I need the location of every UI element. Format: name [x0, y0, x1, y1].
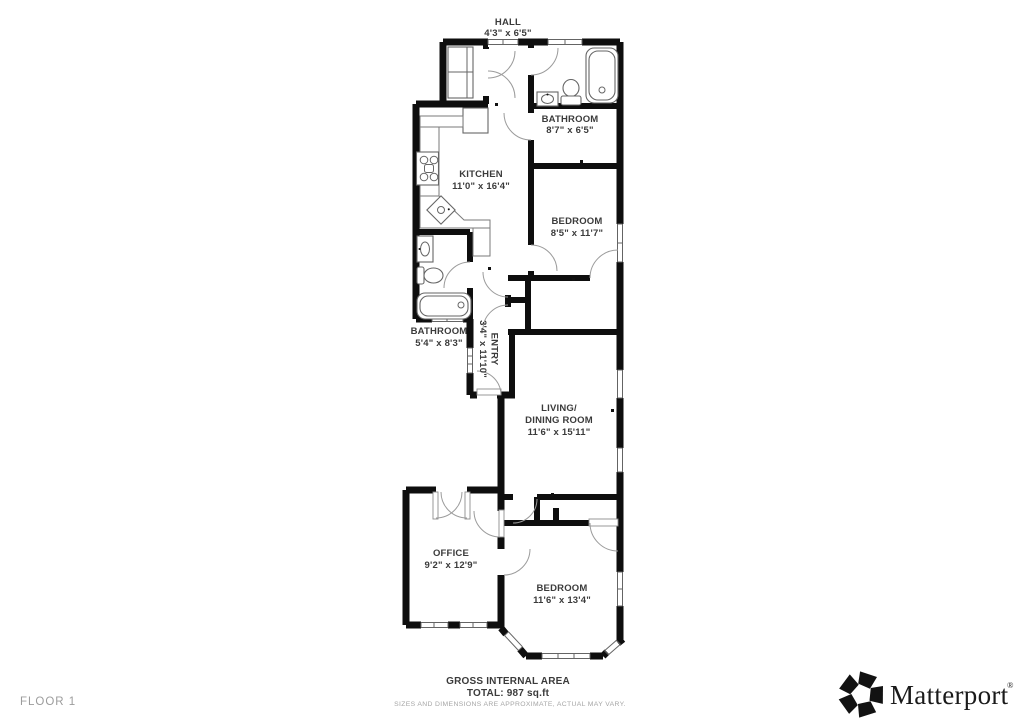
- window: [615, 370, 625, 398]
- room-label-bedroom-top: BEDROOM 8'5" x 11'7": [551, 216, 603, 239]
- door-arc: [436, 492, 462, 518]
- registered-mark-icon: ®: [1007, 680, 1014, 690]
- brand-wordmark: Matterport: [890, 680, 1009, 710]
- toilet-icon: [417, 267, 443, 284]
- room-dims: 9'2" x 12'9": [425, 560, 478, 571]
- toilet-icon: [561, 80, 581, 106]
- door-arc: [444, 262, 470, 288]
- window: [421, 620, 448, 630]
- room-dims: 11'6" x 15'11": [528, 427, 591, 438]
- room-label-bedroom-bottom: BEDROOM 11'6" x 13'4": [533, 583, 591, 606]
- room-name: BATHROOM: [411, 326, 468, 337]
- window: [542, 651, 590, 661]
- closet-shelf-icon: [448, 47, 473, 98]
- disclaimer-text: SIZES AND DIMENSIONS ARE APPROXIMATE, AC…: [394, 701, 626, 708]
- room-label-living-dining: LIVING/ DINING ROOM 11'6" x 15'11": [525, 403, 593, 438]
- room-name: HALL: [495, 17, 521, 28]
- door-arc: [488, 71, 515, 98]
- sink-icon: [537, 92, 558, 106]
- door-arc: [483, 272, 508, 297]
- room-name: OFFICE: [433, 548, 469, 559]
- door-leaf: [589, 519, 618, 526]
- room-label-office: OFFICE 9'2" x 12'9": [425, 548, 478, 571]
- door-arc: [488, 51, 515, 78]
- room-dims: 5'4" x 8'3": [415, 338, 462, 349]
- room-name: BEDROOM: [536, 583, 587, 594]
- room-dims: 11'0" x 16'4": [452, 181, 510, 192]
- window: [460, 620, 487, 630]
- door-arc: [504, 549, 530, 575]
- room-label-kitchen: KITCHEN 11'0" x 16'4": [452, 169, 510, 192]
- matterport-pinwheel-icon: [835, 671, 888, 722]
- floor-label: FLOOR 1: [20, 696, 76, 708]
- door-leaf: [499, 510, 504, 537]
- door-arc: [474, 511, 500, 537]
- window: [465, 348, 475, 373]
- stove-icon: [417, 152, 439, 185]
- room-dims: 8'7" x 6'5": [546, 125, 593, 136]
- room-label-bathroom-mid: BATHROOM 5'4" x 8'3": [411, 326, 468, 349]
- room-dims: 3'4" x 11'10": [477, 320, 488, 378]
- fridge-icon: [463, 108, 488, 133]
- gross-area-total: TOTAL: 987 sq.ft: [467, 688, 550, 699]
- window: [548, 37, 582, 47]
- door-arc: [531, 245, 557, 271]
- room-name: BATHROOM: [542, 114, 599, 125]
- room-dims: 8'5" x 11'7": [551, 228, 603, 239]
- door-arc: [590, 523, 618, 551]
- room-name: KITCHEN: [459, 169, 503, 180]
- footer: FLOOR 1 GROSS INTERNAL AREA TOTAL: 987 s…: [20, 671, 1014, 722]
- sink-icon: [417, 236, 433, 262]
- room-dims: 4'3" x 6'5": [484, 28, 531, 39]
- door-arc: [531, 48, 558, 75]
- window: [505, 632, 523, 651]
- room-name: DINING ROOM: [525, 415, 593, 426]
- window: [615, 572, 625, 606]
- gross-area-title: GROSS INTERNAL AREA: [446, 676, 570, 687]
- room-name: BEDROOM: [551, 216, 602, 227]
- bathtub-icon: [586, 48, 618, 103]
- window: [615, 448, 625, 472]
- window: [605, 640, 621, 655]
- door-arc: [441, 492, 467, 518]
- door-leaf: [477, 389, 501, 395]
- room-name: ENTRY: [489, 333, 500, 366]
- door-arc: [590, 250, 618, 278]
- room-label-hall: HALL 4'3" x 6'5": [484, 17, 531, 39]
- room-label-bathroom-top: BATHROOM 8'7" x 6'5": [542, 114, 599, 136]
- matterport-logo: Matterport ®: [835, 671, 1014, 722]
- room-dims: 11'6" x 13'4": [533, 595, 591, 606]
- room-label-entry: ENTRY 3'4" x 11'10": [477, 320, 500, 378]
- door-leaf: [465, 492, 470, 519]
- floorplan-canvas: HALL 4'3" x 6'5" BATHROOM 8'7" x 6'5" KI…: [0, 0, 1024, 724]
- door-arc: [504, 113, 531, 140]
- room-name: LIVING/: [541, 403, 577, 414]
- window: [615, 224, 625, 262]
- bathtub-icon: [417, 293, 471, 319]
- door-leaf: [433, 492, 438, 519]
- door-arc: [513, 499, 537, 523]
